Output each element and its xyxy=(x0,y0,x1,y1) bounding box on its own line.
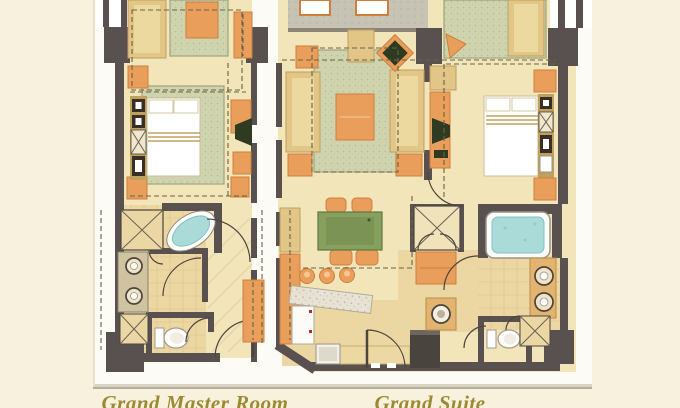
skylight xyxy=(356,0,388,15)
floor-plan-drawing xyxy=(0,0,680,408)
double-vanity xyxy=(118,252,148,312)
cabinet xyxy=(348,30,374,62)
daybed-seat xyxy=(514,4,538,52)
skylight xyxy=(300,0,330,15)
jacuzzi-tub xyxy=(486,212,550,258)
chair xyxy=(231,177,249,197)
walk-in-shower xyxy=(414,206,460,250)
toilet xyxy=(155,328,188,348)
caption-grand-suite: Grand Suite xyxy=(350,391,510,408)
bench xyxy=(430,66,456,90)
side-table xyxy=(233,152,251,174)
side-table xyxy=(288,154,312,176)
toilet xyxy=(487,330,520,348)
shower-2 xyxy=(120,314,148,344)
unit-grand-suite xyxy=(262,0,592,372)
floor-plan-page: Grand Master Room Grand Suite xyxy=(0,0,680,408)
nightstand xyxy=(128,66,148,88)
side-table xyxy=(396,154,422,176)
caption-grand-master-room: Grand Master Room xyxy=(100,391,290,408)
unit-grand-master-room xyxy=(96,0,268,372)
shower xyxy=(121,210,163,250)
nightstand xyxy=(534,70,556,92)
double-vanity xyxy=(530,258,556,318)
media-shelf xyxy=(434,150,448,158)
shower xyxy=(520,316,550,346)
king-bed xyxy=(130,96,200,180)
king-bed xyxy=(484,94,554,178)
nightstand xyxy=(534,178,556,200)
ottoman xyxy=(186,2,218,38)
armchair xyxy=(296,46,318,68)
sofa-seat xyxy=(134,5,160,53)
bar-stools xyxy=(300,268,355,284)
sofa-left-seat xyxy=(292,78,314,146)
window-wall xyxy=(96,0,130,27)
terrace xyxy=(288,0,428,32)
sofa-right-seat xyxy=(396,76,418,146)
